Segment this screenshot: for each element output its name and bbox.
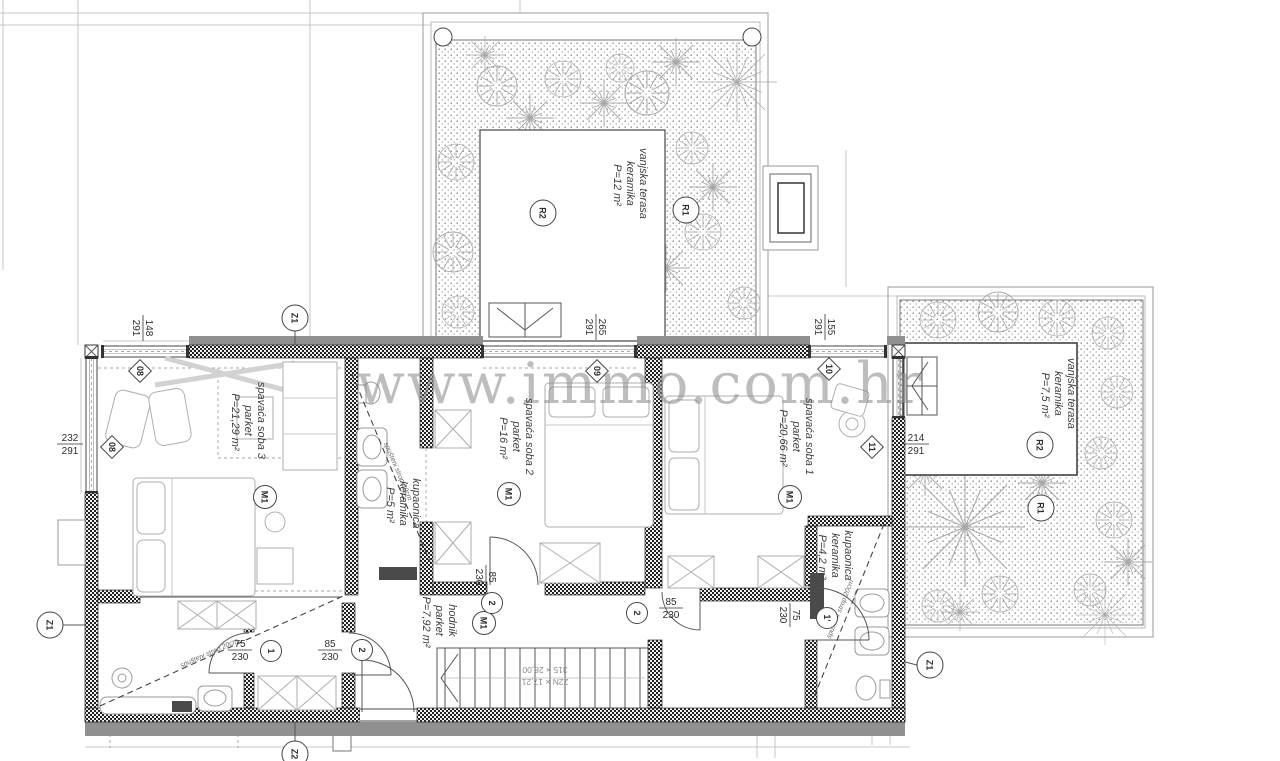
dim-height: 291 [583, 319, 594, 336]
toilet [856, 676, 876, 700]
dim-232-291: 232 291 [57, 433, 83, 457]
door-arc [362, 660, 414, 712]
marker-label: 08 [135, 366, 145, 376]
room-label-floor: parket [790, 420, 802, 453]
room-label-name: vanjska terasa [637, 148, 649, 219]
lamp [265, 512, 285, 532]
marker-door-2: 2 [482, 593, 503, 614]
room-label-area: P=20,66 m² [777, 409, 789, 467]
column-icon [434, 28, 452, 46]
marker-label: M1 [504, 488, 514, 501]
marker-label: 1' [822, 614, 832, 621]
marker-z1: Z1 [905, 652, 943, 678]
chimney [763, 166, 818, 250]
dim-height: 230 [663, 610, 680, 621]
room-label-name: hodnik [446, 604, 458, 637]
washer [379, 567, 417, 580]
marker-label: 1 [266, 648, 276, 653]
stairs-note-line2: 315 × 28,00 [522, 665, 567, 675]
dim-height: 230 [322, 652, 339, 663]
watermark: www.immo.com.hr [356, 351, 924, 417]
armchair [148, 387, 193, 446]
closet [758, 556, 804, 588]
room-label-area: P=7,92 m² [420, 596, 432, 647]
marker-label: 2 [357, 647, 367, 652]
room-label-area: P=12 m² [611, 164, 623, 206]
dim-width: 155 [825, 319, 836, 336]
marker-label: 09 [592, 366, 602, 376]
marker-r1: R1 [673, 197, 699, 223]
marker-m1: M1 [254, 486, 277, 509]
room-label: hodnik parket P=7,92 m² [420, 596, 458, 647]
stairs-note-line1: 22N × 17,21 [521, 677, 568, 687]
marker-r2: R2 [530, 200, 556, 226]
room-label-floor: parket [510, 420, 522, 453]
room-label-floor: parket [242, 404, 254, 437]
room-label: kupaonica keramika P=4,2 m² [816, 530, 854, 583]
marker-label: Z1 [45, 620, 55, 631]
window-08b [81, 356, 98, 494]
marker-label: M1 [260, 491, 270, 504]
terrace-right: vanjska terasa keramika P=7,5 m² [888, 287, 1153, 645]
dim-width: 85 [665, 597, 677, 608]
terrace-top: vanjska terasa keramika P=12 m² [423, 13, 818, 341]
room-label-name: kupaonica [842, 530, 854, 580]
wardrobe [283, 362, 337, 470]
closet [668, 556, 714, 588]
room-label-area: P=4,2 m² [816, 535, 828, 580]
room-label-name: vanjska terasa [1065, 358, 1077, 429]
closet [435, 522, 471, 564]
column-icon [743, 28, 761, 46]
marker-label: Z2 [290, 749, 300, 760]
room-label: kupaonica keramika P=5 m² [384, 478, 422, 531]
nightstand [257, 548, 293, 584]
room-label-name: spavaća soba 1 [803, 398, 815, 475]
room-label-area: P=21,29 m² [229, 393, 241, 451]
dim-width: 85 [324, 639, 336, 650]
marker-label: Z1 [925, 660, 935, 671]
dim-width: 232 [62, 433, 79, 444]
marker-z1: Z1 [37, 612, 85, 638]
wall-niche [58, 520, 85, 565]
marker-label: R1 [1036, 502, 1046, 514]
marker-window-11: 11 [861, 436, 884, 459]
marker-m1: M1 [498, 483, 521, 506]
room-label: spavaća soba 3 parket P=21,29 m² [229, 382, 267, 462]
marker-door-2: 2 [352, 640, 373, 661]
dim-height: 291 [62, 446, 79, 457]
dim-width: 148 [143, 320, 154, 337]
dim-width: 85 [486, 571, 497, 583]
window-08 [101, 341, 189, 358]
fan-shape [155, 358, 295, 390]
marker-label: 08 [107, 442, 117, 452]
floor-plan-canvas: vanjska terasa keramika P=12 m² [0, 0, 1280, 761]
marker-label: 11 [867, 442, 877, 452]
marker-window-08: 08 [129, 360, 152, 383]
floor-plan-drawing: vanjska terasa keramika P=12 m² [0, 0, 1280, 761]
marker-label: M1 [479, 617, 489, 630]
marker-r2: R2 [1027, 432, 1053, 458]
marker-label: 2 [632, 610, 642, 615]
marker-r1: R1 [1028, 495, 1054, 521]
dim-height: 230 [473, 569, 484, 586]
dim-width: 75 [234, 639, 246, 650]
room-label-name: spavaća soba 2 [523, 398, 535, 475]
marker-label: Z1 [290, 313, 300, 324]
closet [178, 601, 256, 629]
marker-label: 10 [824, 364, 834, 374]
room-label-floor: keramika [624, 161, 636, 206]
dim-door-85: 85 230 [318, 639, 342, 663]
dim-148-291: 148 291 [130, 315, 154, 341]
bathroom-fixtures [100, 668, 232, 714]
dim-height: 230 [232, 652, 249, 663]
terrace-step [489, 303, 561, 337]
marker-door-1p: 1' [817, 608, 838, 629]
marker-m1: M1 [473, 612, 496, 635]
dim-height: 291 [130, 320, 141, 337]
marker-label: M1 [785, 491, 795, 504]
room-label-area: P=16 m² [497, 417, 509, 459]
room-label-name: kupaonica [410, 478, 422, 528]
dim-width: 75 [790, 609, 801, 621]
marker-door-2: 2 [627, 603, 648, 624]
entrance-opening [360, 708, 417, 722]
room-label-floor: keramika [829, 533, 841, 578]
room-label-floor: parket [433, 604, 445, 637]
stairs: 22N × 17,21 315 × 28,00 [437, 648, 648, 708]
room-label-name: spavaća soba 3 [255, 382, 267, 460]
dim-height: 291 [812, 319, 823, 336]
dim-height: 291 [908, 446, 925, 457]
room-label-area: P=7,5 m² [1039, 373, 1051, 418]
dim-height: 230 [777, 607, 788, 624]
marker-label: R2 [1035, 439, 1045, 451]
closet [540, 543, 600, 583]
closet [258, 676, 336, 710]
marker-label: R1 [681, 204, 691, 216]
marker-label: R2 [538, 207, 548, 219]
dim-door-75: 75 230 [777, 603, 801, 627]
room-label-floor: keramika [397, 481, 409, 526]
dim-width: 265 [596, 319, 607, 336]
dim-155-291: 155 291 [812, 314, 836, 340]
marker-door-1: 1 [261, 641, 282, 662]
dim-width: 214 [908, 433, 925, 444]
marker-m1: M1 [779, 486, 802, 509]
marker-label: 2 [487, 600, 497, 605]
room-label-floor: keramika [1052, 371, 1064, 416]
room-label-area: P=5 m² [384, 487, 396, 523]
